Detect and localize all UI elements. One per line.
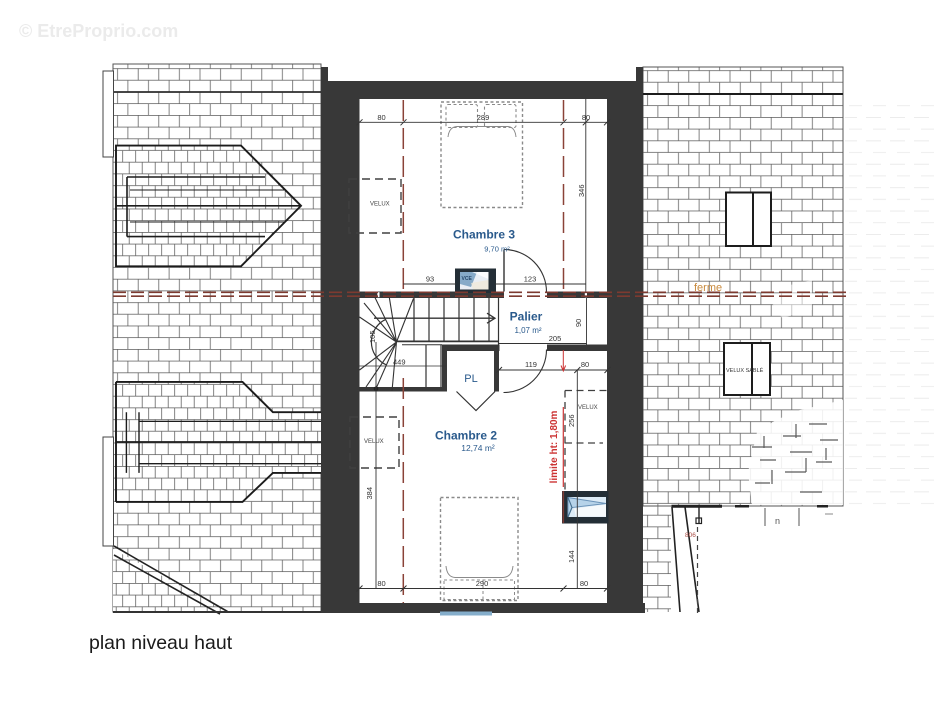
svg-text:Chambre 2: Chambre 2	[435, 429, 497, 443]
svg-text:346: 346	[577, 184, 586, 197]
svg-text:VELUX: VELUX	[370, 202, 390, 208]
svg-text:80: 80	[377, 579, 385, 588]
svg-text:9,70 m²: 9,70 m²	[484, 245, 510, 254]
svg-text:VELUX: VELUX	[364, 439, 384, 445]
svg-text:105: 105	[368, 330, 377, 343]
svg-text:93: 93	[426, 275, 434, 284]
svg-text:144: 144	[567, 550, 576, 563]
svg-text:plan niveau haut: plan niveau haut	[89, 632, 233, 654]
svg-text:384: 384	[365, 487, 374, 500]
svg-text:80: 80	[581, 360, 589, 369]
svg-text:© EtreProprio.com: © EtreProprio.com	[19, 21, 178, 41]
svg-text:806: 806	[685, 532, 696, 539]
svg-text:90: 90	[574, 319, 583, 327]
svg-text:119: 119	[525, 360, 537, 369]
svg-text:12,74 m²: 12,74 m²	[461, 443, 495, 453]
svg-text:256: 256	[567, 414, 576, 427]
svg-text:290: 290	[476, 579, 489, 588]
svg-text:Palier: Palier	[510, 310, 543, 324]
svg-text:PL: PL	[464, 373, 477, 385]
svg-text:80: 80	[377, 113, 385, 122]
svg-text:limite ht: 1,80m: limite ht: 1,80m	[549, 411, 560, 484]
svg-text:VELUX: VELUX	[578, 405, 598, 411]
svg-text:1,07 m²: 1,07 m²	[514, 326, 541, 335]
svg-text:205: 205	[549, 334, 562, 343]
svg-text:123: 123	[524, 275, 537, 284]
svg-text:VELUX SABLÉ: VELUX SABLÉ	[726, 367, 764, 374]
svg-text:289: 289	[477, 113, 490, 122]
svg-text:ferme: ferme	[694, 282, 722, 294]
svg-text:Chambre 3: Chambre 3	[453, 228, 515, 242]
svg-text:80: 80	[580, 579, 588, 588]
svg-text:449: 449	[393, 358, 406, 367]
svg-text:VCE: VCE	[462, 276, 473, 282]
svg-text:n: n	[775, 516, 780, 526]
